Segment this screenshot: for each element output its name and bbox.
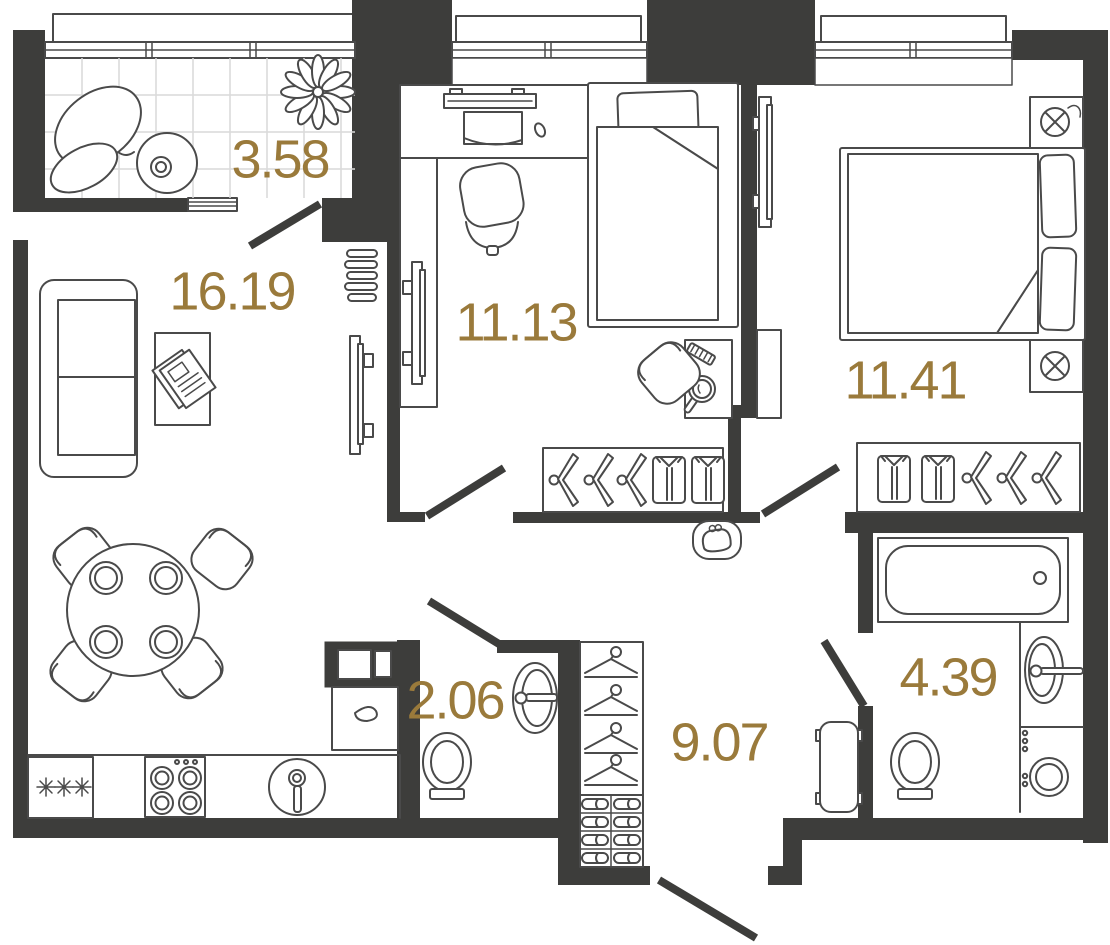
pillow [1040,154,1077,237]
balcony-glazing [45,42,355,58]
wc-washbasin [513,663,557,733]
area-label-bedroom-1: 11.13 [455,292,576,352]
bedroom2-window-sill [821,16,1006,44]
tv-living-icon [350,336,373,454]
balcony-door-swing [250,204,320,246]
slat-shelf [345,250,377,301]
living-kitchen-room [28,250,400,818]
toilet [891,733,939,799]
bedside-lamp-icon [1041,352,1069,380]
shoe-rack [580,795,643,867]
bedside-lamp-icon [1041,108,1069,136]
dining-chair [185,523,258,596]
area-label-hallway: 9.07 [670,712,767,772]
double-bed [840,148,1085,340]
tv-cabinet [400,158,437,407]
area-label-wc: 2.06 [406,670,503,730]
lounge-chair [40,70,156,202]
area-label-bedroom-2: 11.41 [844,350,965,410]
coat-hanger-rack [580,642,643,795]
blanket [848,154,1038,333]
kitchen-cabinet [332,687,398,750]
balcony-partition-window [188,198,237,211]
radiator [816,722,862,812]
bathroom-washbasin [1025,637,1083,703]
bedroom2-wardrobe [857,443,1080,512]
fridge [28,757,93,818]
bedroom1-window-sill [456,16,641,44]
bedroom1-wardrobe [543,448,724,512]
wc-door-swing [429,601,499,644]
entrance-door-swing [659,880,756,938]
area-label-bathroom: 4.39 [899,647,996,707]
area-label-balcony: 3.58 [231,129,328,189]
nightstand-top [1030,97,1083,148]
balcony-side-table [137,133,197,193]
oven-column [325,642,398,687]
laptop-icon [464,112,522,144]
bedroom1-door-swing [427,468,504,516]
balcony-window-sill [53,14,353,44]
bedroom2-room [753,97,1085,512]
bedroom1-window [452,42,647,85]
bathroom-door-swing [824,641,864,706]
kitchen-counter [28,755,400,818]
area-label-living-kitchen: 16.19 [169,261,294,321]
dining-table [44,522,258,708]
coffee-table [152,333,215,425]
pouf [693,521,741,559]
office-chair [457,160,527,255]
dresser [757,330,781,418]
washing-machine [1023,731,1068,796]
window-sills [53,14,1006,44]
nightstand-bottom [1030,340,1083,392]
toilet [423,733,471,799]
bedroom2-door-swing [763,467,838,514]
sofa [40,280,137,477]
bathtub [878,538,1068,622]
bedroom2-window [815,42,1012,85]
plant-icon [281,55,355,129]
hallway-room [580,521,862,867]
floor-plan-svg: 3.58 16.19 11.13 11.41 2.06 9.07 4.39 [0,0,1110,945]
single-bed [588,83,738,327]
hob [145,757,205,817]
kitchen-sink [269,759,325,815]
pillow [1040,247,1077,330]
floor-plan: 3.58 16.19 11.13 11.41 2.06 9.07 4.39 [0,0,1110,945]
